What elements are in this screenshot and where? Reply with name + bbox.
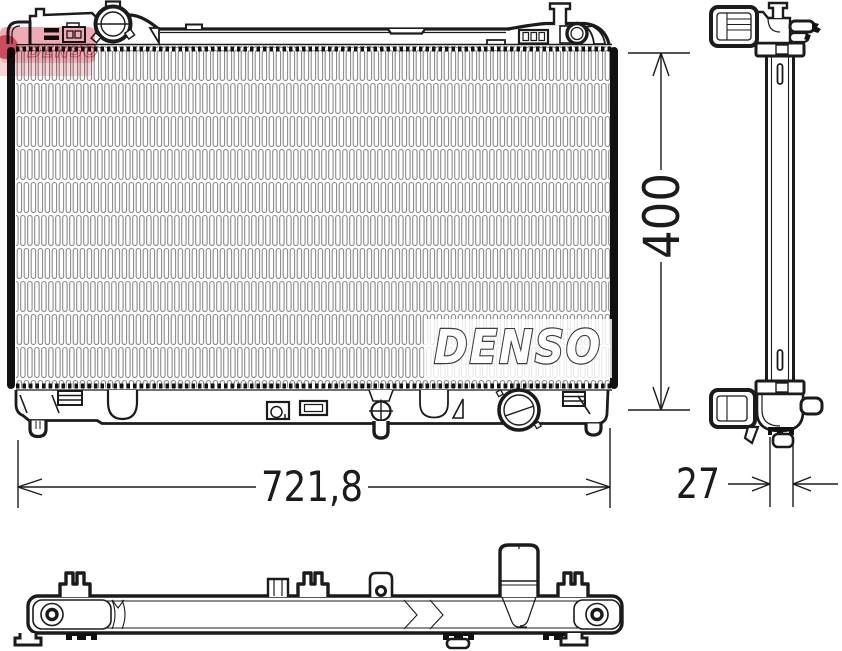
connector-right	[519, 30, 548, 44]
sensor-boss	[267, 402, 289, 419]
side-view	[711, 3, 822, 447]
foot-right	[561, 633, 587, 645]
dimension-width: 721,8	[18, 428, 610, 511]
denso-watermark: DENSO	[0, 27, 99, 76]
outlet-port	[496, 390, 541, 430]
tab-with-hole	[370, 573, 392, 597]
foot-left	[15, 633, 41, 645]
dimension-depth: 27	[676, 437, 838, 508]
clip-ladder-left	[58, 391, 82, 405]
mount-pin-left	[30, 421, 46, 437]
dimension-depth-label: 27	[676, 459, 720, 508]
drawing-canvas: DENSO DENSO	[0, 0, 842, 651]
side-top-tank	[711, 3, 821, 56]
top-tank	[8, 2, 612, 45]
dimension-width-label: 721,8	[261, 462, 363, 511]
filler-cap	[91, 2, 134, 43]
clip-top-4	[558, 573, 588, 597]
u-cup	[420, 390, 448, 418]
front-view: DENSO	[7, 2, 618, 439]
clip-top-1	[60, 573, 90, 597]
denso-logo-text: DENSO	[434, 320, 602, 374]
drain-plug	[369, 390, 393, 438]
mount-pin-right	[586, 424, 601, 436]
side-bottom-tank	[711, 381, 822, 447]
dimension-height-label: 400	[633, 173, 691, 259]
end-cap-left	[33, 600, 111, 629]
mount-tab-top-right	[550, 4, 570, 26]
bottom-view	[15, 545, 622, 648]
flange-boss	[300, 401, 327, 415]
clip-ladder-right	[563, 392, 585, 406]
clip-top-2	[268, 579, 288, 597]
side-plate-left	[7, 47, 15, 389]
radiator-technical-drawing: DENSO DENSO	[0, 0, 842, 651]
denso-logo: DENSO	[424, 319, 612, 378]
end-cap-right	[574, 600, 620, 629]
fitting-port	[560, 24, 587, 44]
side-core-column	[767, 55, 794, 427]
pump-arch	[108, 390, 137, 419]
clip-top-3	[298, 573, 328, 597]
dimension-height: 400	[628, 53, 691, 410]
bottom-tank	[16, 390, 612, 438]
watermark-text: DENSO	[27, 42, 99, 62]
